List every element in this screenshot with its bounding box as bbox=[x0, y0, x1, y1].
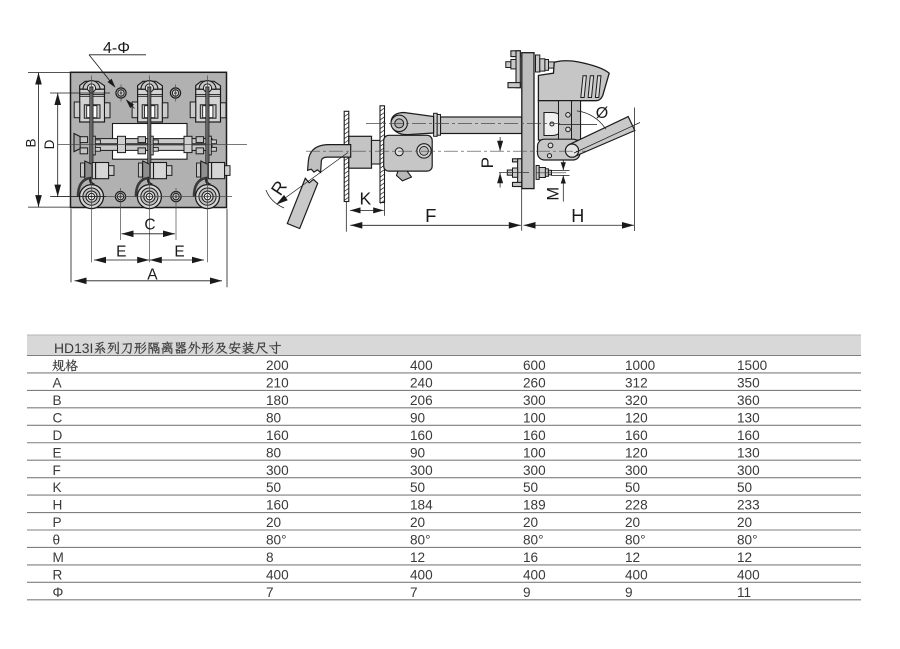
svg-text:20: 20 bbox=[625, 515, 641, 530]
svg-text:400: 400 bbox=[266, 568, 289, 583]
svg-text:300: 300 bbox=[737, 463, 760, 478]
svg-text:160: 160 bbox=[266, 498, 289, 513]
svg-text:300: 300 bbox=[625, 463, 648, 478]
svg-text:189: 189 bbox=[523, 498, 546, 513]
svg-text:20: 20 bbox=[266, 515, 282, 530]
svg-text:R: R bbox=[267, 177, 291, 199]
svg-text:80°: 80° bbox=[625, 533, 646, 548]
svg-text:θ: θ bbox=[53, 533, 61, 548]
svg-text:350: 350 bbox=[737, 376, 760, 391]
svg-text:400: 400 bbox=[410, 568, 433, 583]
svg-text:120: 120 bbox=[625, 411, 648, 426]
svg-text:K: K bbox=[360, 189, 372, 209]
svg-text:8: 8 bbox=[266, 550, 274, 565]
svg-text:D: D bbox=[53, 428, 63, 443]
svg-text:160: 160 bbox=[625, 428, 648, 443]
svg-text:228: 228 bbox=[625, 498, 648, 513]
svg-text:F: F bbox=[425, 205, 436, 226]
svg-text:12: 12 bbox=[737, 550, 752, 565]
svg-text:M: M bbox=[53, 550, 64, 565]
svg-text:50: 50 bbox=[410, 480, 426, 495]
svg-text:12: 12 bbox=[410, 550, 425, 565]
svg-text:50: 50 bbox=[625, 480, 641, 495]
svg-text:20: 20 bbox=[737, 515, 753, 530]
svg-text:184: 184 bbox=[410, 498, 433, 513]
svg-text:20: 20 bbox=[410, 515, 426, 530]
svg-text:E: E bbox=[174, 244, 184, 261]
svg-text:120: 120 bbox=[625, 445, 648, 460]
svg-text:P: P bbox=[53, 515, 62, 530]
svg-text:C: C bbox=[144, 217, 155, 234]
svg-text:R: R bbox=[53, 568, 63, 583]
svg-text:80°: 80° bbox=[523, 533, 544, 548]
svg-text:400: 400 bbox=[625, 568, 648, 583]
svg-text:100: 100 bbox=[523, 411, 546, 426]
svg-text:A: A bbox=[147, 266, 158, 283]
svg-text:80: 80 bbox=[266, 445, 282, 460]
svg-text:300: 300 bbox=[523, 463, 546, 478]
svg-text:H: H bbox=[53, 498, 63, 513]
svg-text:160: 160 bbox=[737, 428, 760, 443]
svg-text:M: M bbox=[544, 187, 562, 201]
svg-text:260: 260 bbox=[523, 376, 546, 391]
svg-text:206: 206 bbox=[410, 393, 433, 408]
svg-text:D: D bbox=[42, 139, 57, 149]
svg-text:50: 50 bbox=[523, 480, 539, 495]
svg-text:360: 360 bbox=[737, 393, 760, 408]
svg-text:Ø: Ø bbox=[596, 105, 608, 122]
svg-text:130: 130 bbox=[737, 445, 760, 460]
svg-text:80°: 80° bbox=[737, 533, 758, 548]
svg-text:H: H bbox=[571, 206, 584, 226]
svg-text:1500: 1500 bbox=[737, 358, 768, 373]
svg-text:240: 240 bbox=[410, 376, 433, 391]
svg-text:K: K bbox=[53, 480, 62, 495]
svg-text:400: 400 bbox=[523, 568, 546, 583]
svg-text:B: B bbox=[24, 138, 39, 147]
svg-text:7: 7 bbox=[266, 585, 274, 600]
svg-text:600: 600 bbox=[523, 358, 546, 373]
svg-text:100: 100 bbox=[523, 445, 546, 460]
svg-text:9: 9 bbox=[523, 585, 531, 600]
svg-text:HD13I: HD13I bbox=[54, 340, 93, 356]
svg-text:160: 160 bbox=[410, 428, 433, 443]
svg-text:9: 9 bbox=[625, 585, 633, 600]
svg-text:7: 7 bbox=[410, 585, 418, 600]
svg-text:200: 200 bbox=[266, 358, 289, 373]
svg-text:210: 210 bbox=[266, 376, 289, 391]
svg-text:320: 320 bbox=[625, 393, 648, 408]
svg-text:130: 130 bbox=[737, 411, 760, 426]
svg-text:Φ: Φ bbox=[53, 585, 64, 600]
svg-text:80°: 80° bbox=[266, 533, 287, 548]
svg-text:F: F bbox=[53, 463, 61, 478]
svg-text:P: P bbox=[478, 157, 497, 168]
svg-text:300: 300 bbox=[410, 463, 433, 478]
svg-text:312: 312 bbox=[625, 376, 648, 391]
svg-text:E: E bbox=[53, 445, 62, 460]
svg-text:16: 16 bbox=[523, 550, 538, 565]
svg-text:50: 50 bbox=[266, 480, 282, 495]
svg-text:400: 400 bbox=[410, 358, 433, 373]
svg-text:20: 20 bbox=[523, 515, 539, 530]
svg-text:400: 400 bbox=[737, 568, 760, 583]
svg-text:80: 80 bbox=[266, 411, 282, 426]
svg-text:80°: 80° bbox=[410, 533, 431, 548]
svg-text:180: 180 bbox=[266, 393, 289, 408]
svg-text:50: 50 bbox=[737, 480, 753, 495]
svg-text:90: 90 bbox=[410, 445, 426, 460]
svg-text:160: 160 bbox=[266, 428, 289, 443]
svg-text:300: 300 bbox=[266, 463, 289, 478]
svg-text:90: 90 bbox=[410, 411, 426, 426]
svg-text:12: 12 bbox=[625, 550, 640, 565]
svg-text:300: 300 bbox=[523, 393, 546, 408]
svg-text:11: 11 bbox=[737, 585, 751, 600]
svg-text:B: B bbox=[53, 393, 62, 408]
svg-text:A: A bbox=[53, 376, 63, 391]
svg-text:E: E bbox=[116, 244, 126, 261]
svg-text:C: C bbox=[53, 411, 63, 426]
svg-text:233: 233 bbox=[737, 498, 760, 513]
svg-text:1000: 1000 bbox=[625, 358, 656, 373]
svg-text:160: 160 bbox=[523, 428, 546, 443]
